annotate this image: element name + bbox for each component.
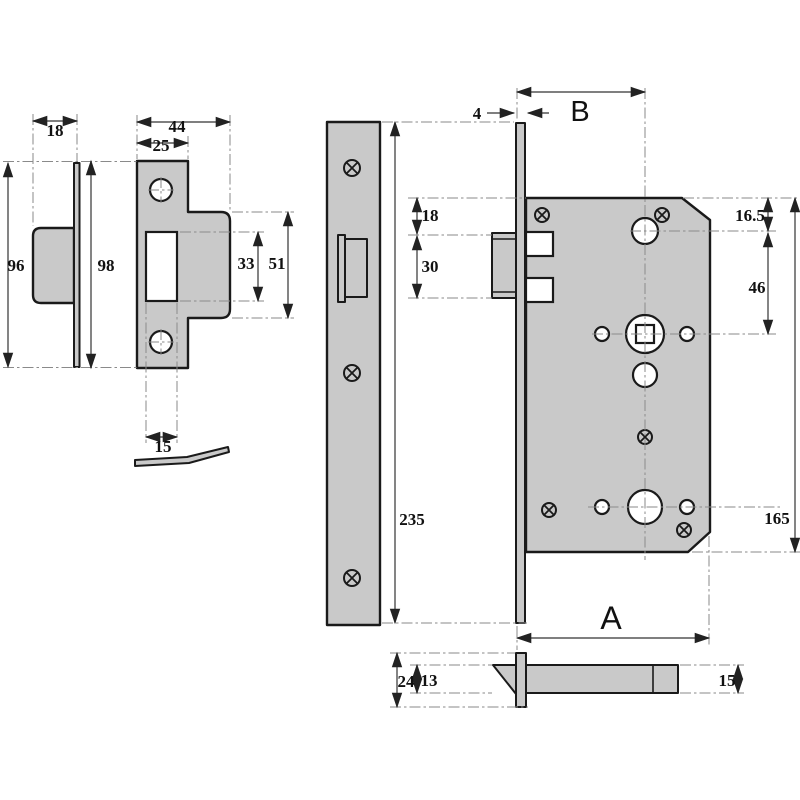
lock-technical-drawing: 18 96 44 25 98 33 51 15 235 4 B 18 30 16… — [0, 0, 800, 800]
dim-latch-bolt-height: 13 — [421, 671, 438, 690]
faceplate-screw-icon — [344, 365, 360, 381]
dim-latch-top-offset: 18 — [422, 206, 439, 225]
lock-body-side-view — [492, 123, 710, 623]
case-screw-icon — [535, 208, 549, 222]
dim-front-overall-width: 44 — [169, 117, 187, 136]
latch-pocket-upper — [526, 232, 553, 256]
dim-faceplate-length: 235 — [399, 510, 425, 529]
strike-tongue — [135, 447, 229, 466]
strike-box-profile — [33, 228, 74, 303]
dim-cylinder-to-spindle: 46 — [749, 278, 766, 297]
latchbolt-side-view — [493, 653, 678, 707]
dim-front-height: 98 — [98, 256, 115, 275]
dim-case-height: 165 — [764, 509, 790, 528]
latch-pocket-lower — [526, 278, 553, 302]
dim-latch-overall-height: 24 — [398, 672, 416, 691]
latchbolt-body — [526, 665, 678, 693]
case-screw-icon — [542, 503, 556, 517]
strike-cutout — [146, 232, 177, 301]
faceplate-screw-icon — [344, 570, 360, 586]
dim-front-plate-width: 25 — [153, 136, 170, 155]
dim-faceplate-projection: 4 — [473, 104, 482, 123]
dim-case-depth-label: A — [600, 600, 622, 636]
drawing-canvas: 18 96 44 25 98 33 51 15 235 4 B 18 30 16… — [0, 0, 800, 800]
dim-side-height: 96 — [8, 256, 25, 275]
case-screw-icon — [655, 208, 669, 222]
dim-front-cutout-width: 15 — [155, 437, 172, 456]
strike-plate-side-profile — [74, 163, 80, 367]
strike-plate-side-view — [33, 163, 80, 367]
faceplate-slot-edge — [338, 235, 345, 302]
dim-latch-height: 30 — [422, 257, 439, 276]
faceplate-screw-icon — [344, 160, 360, 176]
forend-cross-section — [516, 653, 526, 707]
dim-latch-bolt-length: 15 — [719, 671, 736, 690]
latchbolt-bevel — [493, 665, 516, 694]
dim-cylinder-top-offset: 16.5 — [735, 206, 765, 225]
dim-backset-label: B — [570, 96, 589, 128]
dim-side-thickness: 18 — [47, 121, 64, 140]
case-screw-icon — [677, 523, 691, 537]
strike-plate-front-view — [135, 161, 230, 466]
dim-front-cutout-height: 33 — [238, 254, 255, 273]
faceplate-latch-face — [345, 239, 367, 297]
latch-bolt-head — [492, 233, 516, 298]
dim-front-lip-height: 51 — [269, 254, 286, 273]
